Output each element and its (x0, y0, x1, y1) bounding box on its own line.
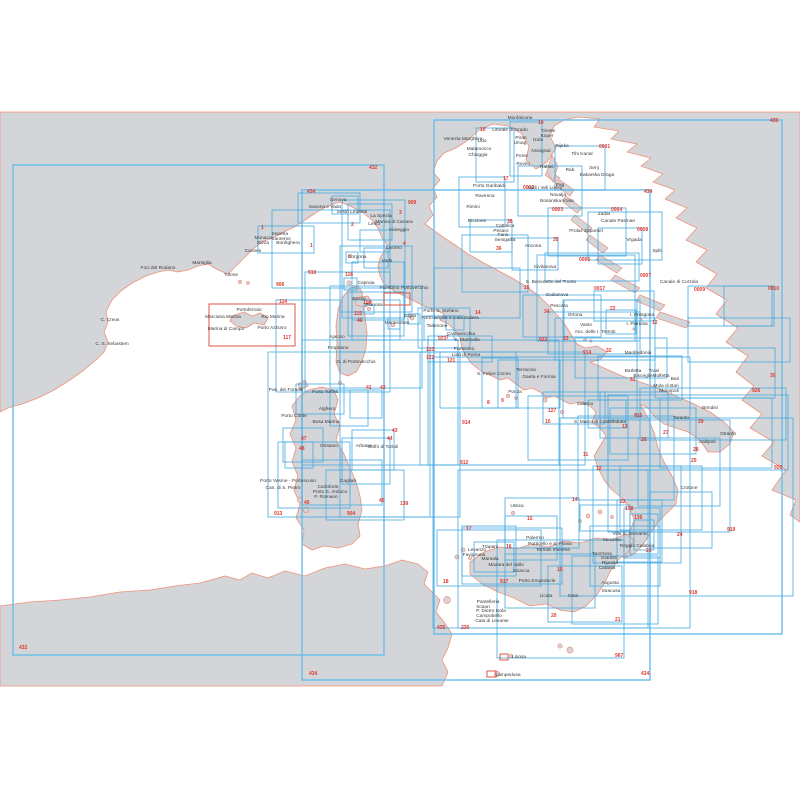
place-label: Livorno (386, 245, 402, 251)
chart-number: 115 (354, 311, 362, 317)
chart-number: 0009 (694, 287, 705, 293)
place-label: Pescara (550, 303, 568, 309)
chart-number: 139 (400, 501, 409, 507)
chart-number: 1 (261, 225, 264, 231)
place-label: Porto Ercole e Cala Galera (421, 315, 479, 321)
place-label: Ravenna (475, 193, 495, 199)
place-label: Cagliari (340, 478, 356, 484)
island-hyeres-1 (238, 280, 241, 283)
place-label: Catania (599, 565, 616, 571)
chart-number: 9 (501, 398, 504, 404)
dalmatian-island-8 (656, 312, 690, 328)
chart-number: 25 (691, 458, 697, 464)
place-label: Ancona (525, 243, 542, 249)
place-label: Giulianova (546, 292, 569, 298)
place-label: Bordighera (276, 240, 300, 246)
chart-index-map: 4324324304344344344344352309679069109099… (0, 0, 800, 800)
chart-number: 48 (299, 446, 305, 452)
chart-box (545, 253, 639, 281)
chart-number: 26 (641, 437, 647, 443)
place-label: Riccione (468, 218, 487, 224)
chart-number: 4 (403, 241, 406, 247)
place-label: Crotone (680, 485, 697, 491)
chart-number: 114 (279, 299, 287, 305)
place-label: Bari (671, 376, 680, 382)
chart-number: 914 (583, 350, 592, 356)
place-label: Licata (540, 593, 553, 599)
island-malta-1 (558, 644, 562, 648)
place-label: Rijeka (555, 143, 569, 149)
place-label: Canale di Curzola (660, 279, 698, 285)
chart-number: 0007 (640, 273, 651, 279)
chart-number: 919 (727, 527, 736, 533)
place-label: Pianosa (365, 302, 383, 308)
place-label: Marsala (481, 556, 498, 562)
chart-number: 121 (447, 358, 456, 364)
chart-number: 45 (379, 498, 385, 504)
place-label: Senigallia (495, 237, 516, 243)
place-label: Gallipoli (698, 439, 715, 445)
place-label: Split (652, 248, 662, 254)
chart-number: 904 (347, 511, 356, 517)
place-label: Manfredonia (625, 350, 652, 356)
place-label: Vrgada (626, 237, 642, 243)
chart-number: 926 (752, 388, 761, 394)
chart-number: 918 (689, 590, 698, 596)
place-label: Lido (477, 138, 486, 144)
chart-number: 8 (487, 400, 490, 406)
place-label: Porto Azzurro (257, 325, 286, 331)
place-label: Ponza (508, 389, 522, 395)
chart-number: 44 (387, 436, 393, 442)
chart-number: 17 (503, 176, 509, 182)
place-label: Marina di Campo (208, 326, 245, 332)
chart-number: 41 (366, 385, 372, 391)
chart-number: 432 (369, 165, 378, 171)
chart-number: 16 (480, 127, 486, 133)
place-label: Palermo (526, 535, 544, 541)
place-label: Reggio Calabria (620, 543, 655, 549)
place-label: Ortona (568, 312, 583, 318)
chart-number: 19 (557, 567, 563, 573)
place-label: Giglio (404, 313, 417, 319)
place-label: Gorgona (348, 254, 367, 260)
chart-number: 430 (770, 118, 779, 124)
chart-number: 914 (462, 420, 471, 426)
place-label: Vada (382, 258, 393, 264)
place-label: Porec (516, 153, 529, 159)
chart-number: 0003 (552, 207, 563, 213)
chart-number: 21 (615, 617, 621, 623)
place-label: Bakarska Draga (580, 172, 615, 178)
place-label: P. Romano (314, 494, 338, 500)
place-label: Fiumicino (454, 346, 475, 352)
place-label: Bosa Marina (313, 419, 340, 425)
place-label: Zadar (598, 211, 611, 217)
island-hyeres-2 (247, 282, 250, 285)
island-malta-2 (567, 647, 573, 653)
place-label: Brindisi (702, 405, 718, 411)
place-label: Porto Empedocle (519, 578, 556, 584)
place-label: Augusta (601, 580, 619, 586)
place-label: Vasto (580, 322, 592, 328)
chart-number: 14 (572, 497, 578, 503)
place-label: Rimini (466, 204, 479, 210)
place-label: Umag (514, 140, 527, 146)
chart-number: 230 (461, 625, 470, 631)
place-label: Porto Vesme - Portoscuso (260, 478, 316, 484)
place-label: Molfetta (652, 373, 669, 379)
place-label: Propriano (328, 345, 349, 351)
place-label: Lido di Roma (452, 352, 481, 358)
chart-number: 18 (443, 579, 449, 585)
chart-number: 47 (301, 436, 307, 442)
place-label: Rio Marina (261, 314, 285, 320)
place-label: Terracina (516, 367, 536, 373)
chart-inset-box (500, 654, 508, 660)
place-label: Senj (589, 165, 599, 171)
chart-number: 910 (308, 270, 317, 276)
chart-number: 17 (466, 526, 472, 532)
place-label: Porto Torres (312, 389, 339, 395)
chart-number: 15 (527, 516, 533, 522)
chart-number: 920 (774, 465, 783, 471)
chart-number: 12 (596, 466, 602, 472)
place-label: Nizza (257, 240, 269, 246)
chart-number: 138 (625, 506, 634, 512)
chart-number: 434 (309, 671, 318, 677)
chart-number: 123 (426, 347, 435, 353)
chart-number: 16 (506, 544, 512, 550)
place-label: Linosa (512, 654, 526, 660)
chart-number: 27 (663, 430, 669, 436)
chart-number: 435 (437, 625, 446, 631)
place-label: Piombino Portovecchio (379, 285, 428, 291)
place-label: Villa S. Giovanni (612, 531, 647, 537)
place-label: Rabac (540, 164, 554, 170)
chart-number: 19 (538, 120, 544, 126)
dalmatian-island-6 (611, 275, 640, 293)
place-label: Cannes (245, 248, 262, 254)
chart-number: 432 (19, 645, 28, 651)
chart-number: 922 (539, 337, 548, 343)
place-label: C. S. Sebastien (95, 341, 129, 347)
place-label: Salerno (577, 401, 594, 407)
chart-number: 0001 (599, 144, 610, 150)
chart-number: 434 (644, 189, 653, 195)
chart-number: 127 (548, 408, 557, 414)
place-label: Marciana Marina (205, 314, 241, 320)
chart-number: 42 (380, 385, 386, 391)
chart-number: 913 (274, 511, 283, 517)
chart-number: 32 (606, 348, 612, 354)
place-label: Capraia (358, 280, 375, 286)
island-eolie-1 (586, 514, 590, 518)
place-label: S. Marco di Castellabate (574, 419, 627, 425)
place-label: Otranto (720, 431, 736, 437)
place-label: Talamone (427, 323, 448, 329)
place-label: Anc. delle I. Tremiti (575, 329, 616, 335)
place-label: Chioggia (469, 152, 488, 158)
place-label: Monfalcone (508, 115, 533, 121)
place-label: S. Benedetto del Tronto (526, 279, 577, 285)
place-label: S. Marinella (454, 337, 480, 343)
place-label: Marsiglia (192, 260, 212, 266)
chart-number: 122 (426, 355, 435, 361)
place-label: Canale Pasman (601, 218, 635, 224)
dalmatian-island-4 (586, 235, 608, 253)
place-label: Rovinj (516, 161, 529, 167)
place-label: Sciacca (513, 568, 530, 574)
place-label: I. Pianosa (626, 321, 648, 327)
place-label: Genova (330, 197, 347, 203)
place-label: Marina di Carrara (375, 219, 413, 225)
island-ischia (543, 398, 547, 402)
place-label: I. Pelagosa (630, 312, 654, 318)
place-label: Porticello e S. Flavia (528, 541, 572, 547)
island-pantelleria (444, 597, 451, 604)
chart-number: 434 (641, 671, 650, 677)
place-label: Montecristo (385, 320, 410, 326)
place-label: Civitavecchia (447, 331, 476, 337)
chart-number: 22 (610, 306, 616, 312)
place-label: Prolaz Zapuntel (569, 228, 603, 234)
chart-number: 43 (392, 428, 398, 434)
chart-number: 117 (283, 335, 291, 341)
place-label: Bisceglie (633, 373, 653, 379)
chart-number: 0005 (579, 257, 590, 263)
place-label: Izola (533, 137, 543, 143)
place-label: Novigrad (531, 148, 551, 154)
place-label: Termini Imerese (536, 547, 570, 553)
place-label: Mali i Veli Losinj (528, 185, 562, 191)
place-label: C. Creus (101, 317, 121, 323)
place-label: Ustica (510, 503, 524, 509)
chart-number: 906 (276, 282, 285, 288)
place-label: Bastia (352, 296, 366, 302)
chart-number: 28 (693, 447, 699, 453)
place-label: G. di Portovecchio (336, 359, 376, 365)
chart-number: 34 (544, 309, 550, 315)
chart-number: 2 (351, 222, 354, 228)
chart-number: 22 (620, 499, 626, 505)
place-label: Alghero (319, 406, 336, 412)
chart-index-svg: 4324324304344344344344352309679069109099… (0, 0, 800, 800)
place-label: Porto S. Stefano (423, 308, 459, 314)
island-capraia (347, 281, 351, 285)
chart-number: 912 (460, 460, 469, 466)
chart-number: 139 (634, 515, 643, 521)
place-label: Can. di S. Pietro (266, 485, 301, 491)
chart-number: 116 (345, 272, 353, 278)
chart-number: 11 (583, 452, 589, 458)
chart-number: 917 (500, 579, 509, 585)
chart-number: 10 (545, 419, 551, 425)
place-label: Foci del Rodano (141, 265, 176, 271)
chart-number: 46 (304, 500, 310, 506)
chart-number: 0008 (637, 227, 648, 233)
chart-number: 1 (310, 243, 313, 249)
chart-number: 24 (677, 532, 683, 538)
place-label: Sestri Levante (337, 209, 368, 215)
chart-number: 29 (698, 419, 704, 425)
place-label: Golfo di Tortoli (368, 444, 399, 450)
chart-number: 36 (496, 246, 502, 252)
place-label: Viareggio (389, 227, 410, 233)
chart-number: 915 (634, 413, 643, 419)
place-label: Porto Conte (281, 413, 307, 419)
place-label: Ajaccio (329, 334, 345, 340)
place-label: Monopoli (659, 388, 678, 394)
place-label: Levanzo (468, 547, 486, 553)
place-label: Pas. dei Fornelli (269, 387, 303, 393)
chart-box (350, 390, 382, 418)
place-label: Novalja (550, 192, 566, 198)
place-label: Taranto (673, 415, 689, 421)
place-label: Tihi Kanal (571, 151, 592, 157)
place-label: Bosanska Vrata (540, 198, 574, 204)
chart-number: 46 (357, 318, 363, 324)
chart-number: 35 (553, 237, 559, 243)
chart-number: 15 (524, 285, 530, 291)
place-label: Civitanova (534, 264, 557, 270)
place-label: Tolone (224, 272, 238, 278)
place-label: Portoferraio (236, 307, 261, 313)
island-eolie-2 (598, 510, 602, 514)
chart-number: 909 (408, 200, 417, 206)
place-label: La Spezia (370, 213, 392, 219)
place-label: Lampedusa (495, 672, 520, 678)
island-ustica (511, 511, 514, 514)
chart-number: 0010 (768, 286, 779, 292)
chart-number: 30 (770, 373, 776, 379)
place-label: Gela (568, 593, 578, 599)
place-label: S. Felice Circeo (477, 371, 511, 377)
chart-number: 20 (551, 613, 557, 619)
place-label: Rab (566, 167, 575, 173)
place-label: Gaeta e Formia (522, 374, 556, 380)
chart-number: 434 (307, 189, 316, 195)
place-label: Messina (603, 537, 621, 543)
island-eolie-3 (611, 516, 614, 519)
chart-number: 0004 (611, 207, 622, 213)
place-label: Siracusa (602, 588, 621, 594)
chart-number: 12 (652, 320, 658, 326)
place-label: Mazara del Vallo (488, 562, 524, 568)
chart-number: 967 (615, 653, 624, 659)
place-label: Malamocco (467, 146, 492, 152)
place-label: Litorale di Grado (492, 127, 528, 133)
chart-number: 0017 (594, 286, 605, 292)
place-label: Cala di Levante (475, 618, 509, 624)
place-label: Porto Garibaldi (473, 183, 505, 189)
chart-number: 33 (563, 336, 569, 342)
chart-number: 3 (399, 210, 402, 216)
place-label: Oristano (320, 443, 338, 449)
